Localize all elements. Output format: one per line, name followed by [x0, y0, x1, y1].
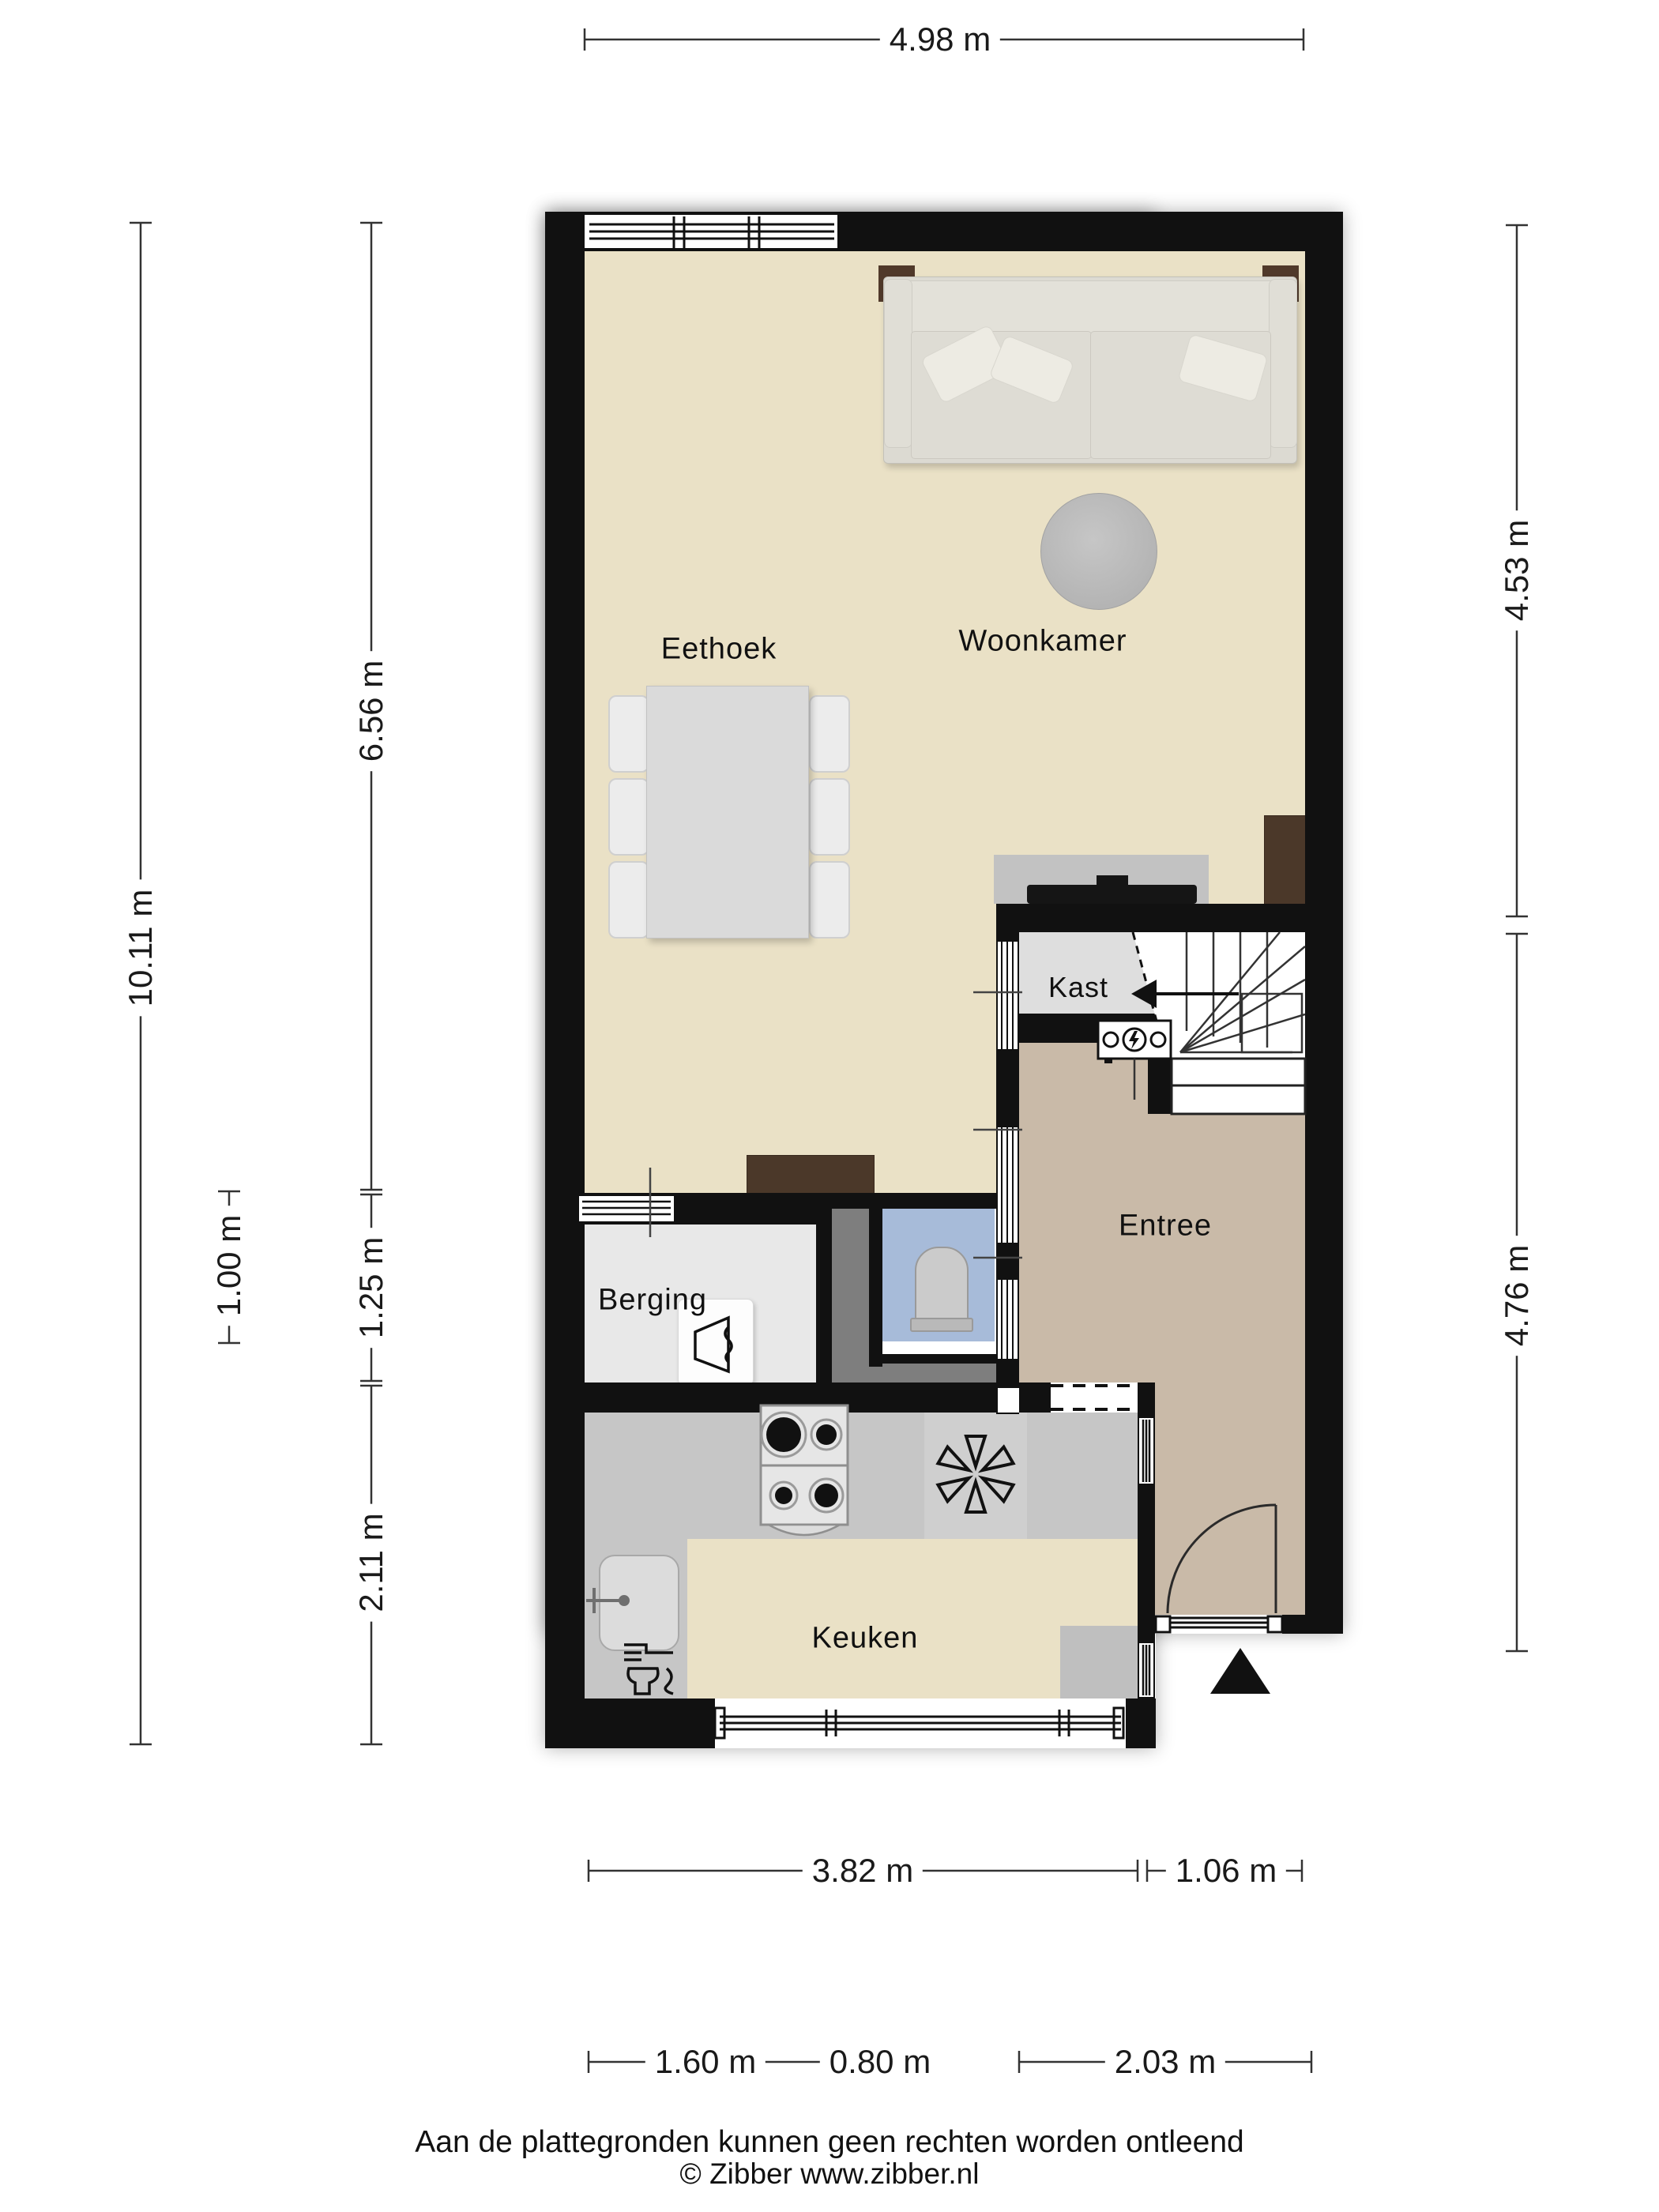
floor-plan-page: Eethoek Woonkamer Kast Entree Berging Ke…: [0, 0, 1659, 2212]
entrance-arrow-icon: [1210, 1648, 1270, 1694]
footer-copyright: © Zibber www.zibber.nl: [680, 2157, 980, 2191]
gas-hob-icon: [761, 1405, 848, 1535]
dim-left-mid: 1.25 m: [351, 1228, 392, 1348]
dim-right-upper: 4.53 m: [1496, 510, 1537, 630]
meter-box-icon: [1098, 1021, 1171, 1100]
window-top-glazing: [589, 216, 834, 248]
dim-left-upper: 6.56 m: [351, 651, 392, 771]
dim-bottom-1a: 3.82 m: [803, 1850, 923, 1891]
dim-left-lower: 2.11 m: [351, 1503, 392, 1621]
dim-left-small: 1.00 m: [209, 1206, 250, 1326]
dishwasher-icon: [624, 1645, 673, 1694]
dim-right-lower: 4.76 m: [1496, 1236, 1537, 1356]
window-berging-glazing: [582, 1202, 671, 1214]
label-berging: Berging: [598, 1284, 707, 1318]
witness-ticks: [650, 992, 1022, 1258]
window-kitchen-east-glazing: [1143, 1420, 1149, 1695]
front-door-icon: [1168, 1505, 1276, 1613]
dim-bottom-1b: 1.06 m: [1166, 1850, 1286, 1891]
sink-faucet-icon: [586, 1588, 628, 1613]
label-keuken: Keuken: [812, 1622, 919, 1656]
footer-disclaimer: Aan de plattegronden kunnen geen rechten…: [415, 2125, 1244, 2160]
front-door-sill-lines: [1156, 1616, 1282, 1632]
dim-top: 4.98 m: [880, 19, 1000, 60]
label-woonkamer: Woonkamer: [958, 625, 1127, 659]
extractor-fan-icon: [938, 1436, 1013, 1512]
interior-glazing-lines: [1002, 942, 1013, 1359]
dim-bottom-2c: 2.03 m: [1105, 2041, 1225, 2082]
dim-bottom-2b: 0.80 m: [820, 2041, 940, 2082]
label-kast: Kast: [1048, 971, 1108, 1004]
water-heater-icon: [695, 1318, 732, 1371]
window-kitchen-bottom-glazing: [715, 1708, 1123, 1738]
label-entree: Entree: [1119, 1209, 1212, 1243]
dashed-opening: [1051, 1386, 1138, 1409]
dim-bottom-2a: 1.60 m: [645, 2041, 766, 2082]
dim-left-total: 10.11 m: [120, 880, 161, 1017]
label-eethoek: Eethoek: [661, 633, 777, 667]
dimension-lines: [130, 28, 1528, 2073]
